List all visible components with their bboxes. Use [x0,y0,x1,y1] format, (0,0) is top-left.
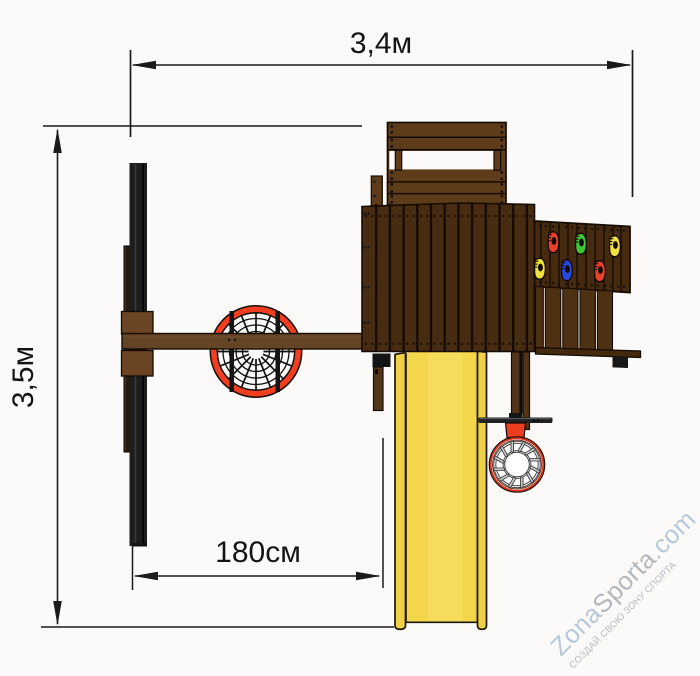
svg-text:3,4м: 3,4м [350,27,412,60]
svg-text:3,5м: 3,5м [7,346,40,408]
svg-text:180см: 180см [215,536,301,569]
